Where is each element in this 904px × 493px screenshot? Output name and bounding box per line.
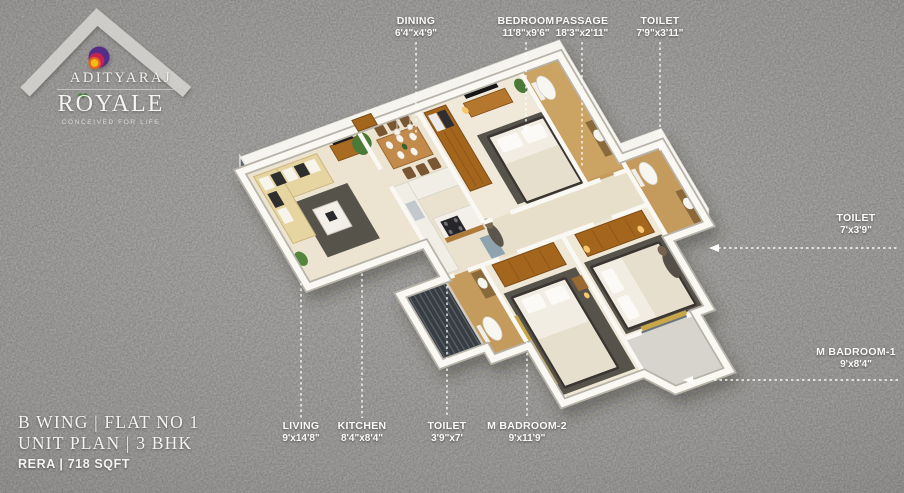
logo-name-text: ROYALE [47, 91, 175, 118]
brand-logo: ADITYARAJ ROYALE CONCEIVED FOR LIFE [0, 0, 220, 140]
screenshot-root: ADITYARAJ ROYALE CONCEIVED FOR LIFE DINI… [0, 0, 904, 493]
label-passage: PASSAGE 18'3"x2'11" [556, 16, 609, 39]
unit-plan-line: UNIT PLAN | 3 BHK [18, 433, 199, 454]
unit-info-block: B WING | FLAT NO 1 UNIT PLAN | 3 BHK RER… [18, 412, 199, 471]
label-bedroom: BEDROOM 11'8"x9'6" [498, 16, 555, 39]
label-toilet-right: TOILET 7'x3'9" [837, 213, 876, 236]
rera-sqft-line: RERA | 718 SQFT [18, 457, 199, 471]
label-dining: DINING 6'4"x4'9" [395, 16, 437, 39]
label-toilet-bottom: TOILET 3'9"x7' [428, 421, 467, 444]
logo-circle-core [90, 58, 100, 68]
label-toilet-top: TOILET 7'9"x3'11" [636, 16, 683, 39]
logo-tagline: CONCEIVED FOR LIFE [47, 119, 175, 126]
label-mbadroom2: M BADROOM-2 9'x11'9" [487, 421, 567, 444]
label-living: LIVING 9'x14'8" [282, 421, 319, 444]
label-mbadroom1: M BADROOM-1 9'x8'4" [816, 347, 896, 370]
wing-flat-line: B WING | FLAT NO 1 [18, 412, 199, 433]
label-kitchen: KITCHEN 8'4"x8'4" [338, 421, 387, 444]
logo-divider [57, 89, 185, 90]
logo-brand-text: ADITYARAJ [57, 70, 185, 87]
